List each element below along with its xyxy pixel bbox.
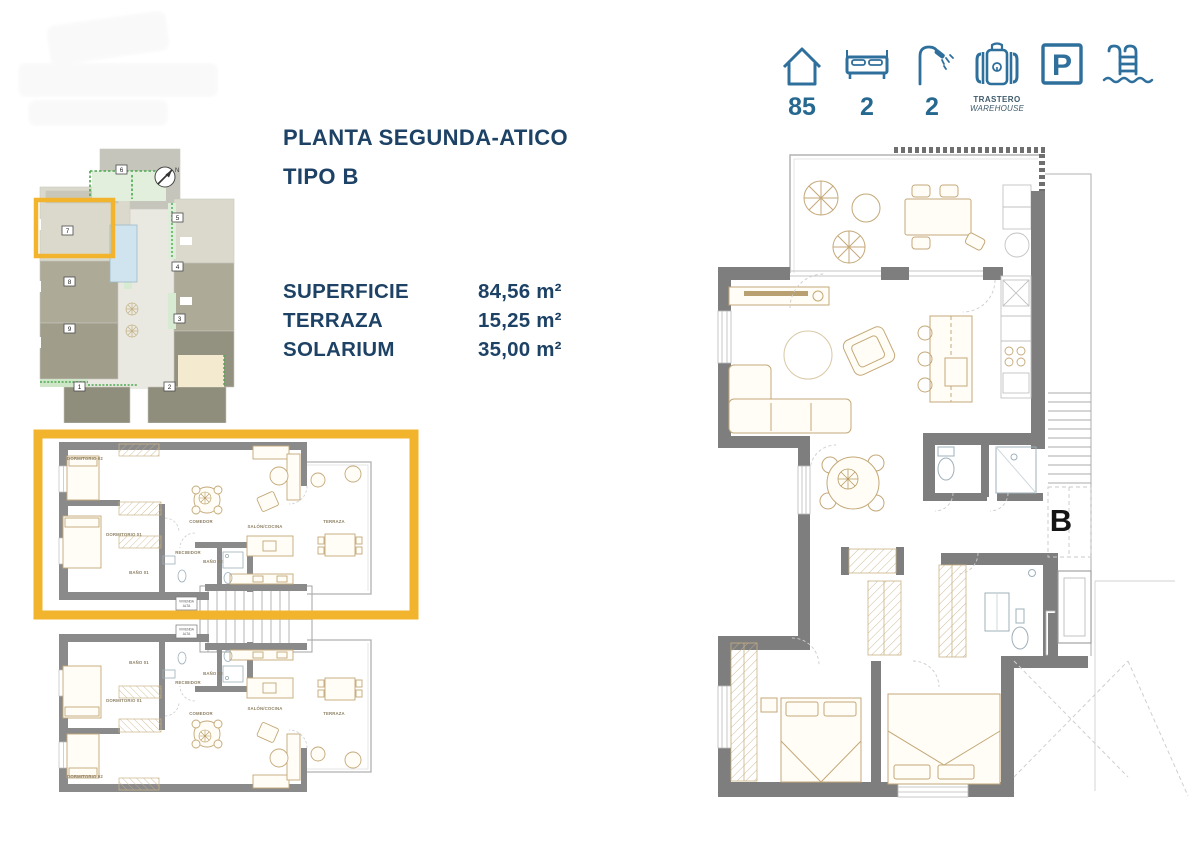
room-label-comedor: COMEDOR: [189, 519, 213, 524]
room-label-terraza: TERRAZA: [323, 519, 345, 524]
key-plan-units: DORMITORIO 02 DORMITORIO 01 BAÑO 01 RECI…: [30, 424, 422, 820]
room-label-bano1: BAÑO 01: [129, 570, 149, 575]
area-row-solarium: SOLARIUM 35,00 m²: [283, 338, 562, 367]
area-label: SUPERFICIE: [283, 280, 478, 304]
unit-number-2: 2: [168, 384, 172, 391]
unit-number-1: 1: [78, 384, 82, 391]
bed-icon: [841, 40, 893, 90]
page-title-line2: TIPO B: [283, 166, 568, 188]
room-label-bano2: BAÑO 02: [203, 671, 223, 676]
area-row-terraza: TERRAZA 15,25 m²: [283, 309, 562, 338]
room-label-comedor: COMEDOR: [189, 711, 213, 716]
area-label: TERRAZA: [283, 309, 478, 333]
amenity-house: 85: [770, 40, 834, 122]
room-label-salon: SALÓN/COCINA: [248, 706, 283, 711]
bathrooms-count: 2: [925, 93, 939, 122]
area-label: SOLARIUM: [283, 338, 478, 362]
unit-number-3: 3: [178, 316, 182, 323]
page-title-line1: PLANTA SEGUNDA-ATICO: [283, 127, 568, 149]
amenity-bedrooms: 2: [835, 40, 899, 122]
storage-icon: [971, 40, 1023, 90]
unit-type-label: B: [1050, 503, 1072, 538]
room-label-bano1: BAÑO 01: [129, 660, 149, 665]
unit-number-7: 7: [66, 228, 70, 235]
storage-label-en: WAREHOUSE: [970, 104, 1024, 113]
room-label-dormitorio1: DORMITORIO 01: [106, 698, 142, 703]
watermark: [18, 8, 233, 133]
pool-icon: [1100, 40, 1154, 90]
compass-n: N: [175, 168, 179, 174]
room-label-terraza: TERRAZA: [323, 711, 345, 716]
main-floor-plan: B: [698, 141, 1200, 823]
dining-area: [820, 455, 884, 511]
areas-table: SUPERFICIE 84,56 m² TERRAZA 15,25 m² SOL…: [283, 280, 562, 367]
area-value: 35,00 m²: [478, 338, 562, 362]
storage-label-es: TRASTERO: [973, 95, 1020, 104]
amenity-storage: TRASTERO WAREHOUSE: [965, 40, 1029, 122]
unit-plan-lower: DORMITORIO 02 DORMITORIO 01 BAÑO 01 RECI…: [59, 634, 371, 792]
unit-number-5: 5: [176, 215, 180, 222]
house-count: 85: [788, 93, 816, 122]
room-label-recibidor: RECIBIDOR: [175, 550, 201, 555]
terrace: [790, 150, 1046, 273]
unit-number-9: 9: [68, 326, 72, 333]
stair-tag-line1: VIVIENDA: [179, 600, 195, 604]
stair-tag-line2: ALTA: [183, 632, 191, 636]
area-value: 15,25 m²: [478, 309, 562, 333]
room-label-dormitorio2: DORMITORIO 02: [67, 456, 103, 461]
area-value: 84,56 m²: [478, 280, 562, 304]
bedrooms-count: 2: [860, 93, 874, 122]
room-label-salon: SALÓN/COCINA: [248, 524, 283, 529]
room-label-dormitorio1: DORMITORIO 01: [106, 532, 142, 537]
room-label-dormitorio2: DORMITORIO 02: [67, 774, 103, 779]
house-icon: [778, 40, 826, 90]
amenity-parking: P: [1030, 40, 1094, 122]
room-label-bano2: BAÑO 02: [203, 559, 223, 564]
stair-tag-line1: VIVIENDA: [179, 628, 195, 632]
area-row-superficie: SUPERFICIE 84,56 m²: [283, 280, 562, 309]
unit-number-4: 4: [176, 264, 180, 271]
unit-number-6: 6: [120, 167, 124, 174]
title-block: PLANTA SEGUNDA-ATICO TIPO B: [283, 127, 568, 188]
amenities-strip: 85 2 2 TRASTERO WARE: [770, 40, 1159, 122]
unit-number-8: 8: [68, 279, 72, 286]
site-plan: 6 5 7 4 8 3 9 1 2 N: [28, 141, 240, 423]
amenity-pool: [1095, 40, 1159, 122]
amenity-bathrooms: 2: [900, 40, 964, 122]
floor-plan-page: { "title_block": { "line1": "PLANTA SEGU…: [0, 0, 1200, 849]
unit-plan-upper: DORMITORIO 02 DORMITORIO 01 BAÑO 01 RECI…: [59, 442, 371, 600]
parking-letter: P: [1052, 49, 1072, 82]
parking-icon: P: [1038, 40, 1086, 90]
shower-icon: [908, 40, 956, 90]
stair-tag-line2: ALTA: [183, 604, 191, 608]
kitchen: [918, 276, 1031, 402]
living-room: [729, 287, 897, 433]
room-label-recibidor: RECIBIDOR: [175, 680, 201, 685]
